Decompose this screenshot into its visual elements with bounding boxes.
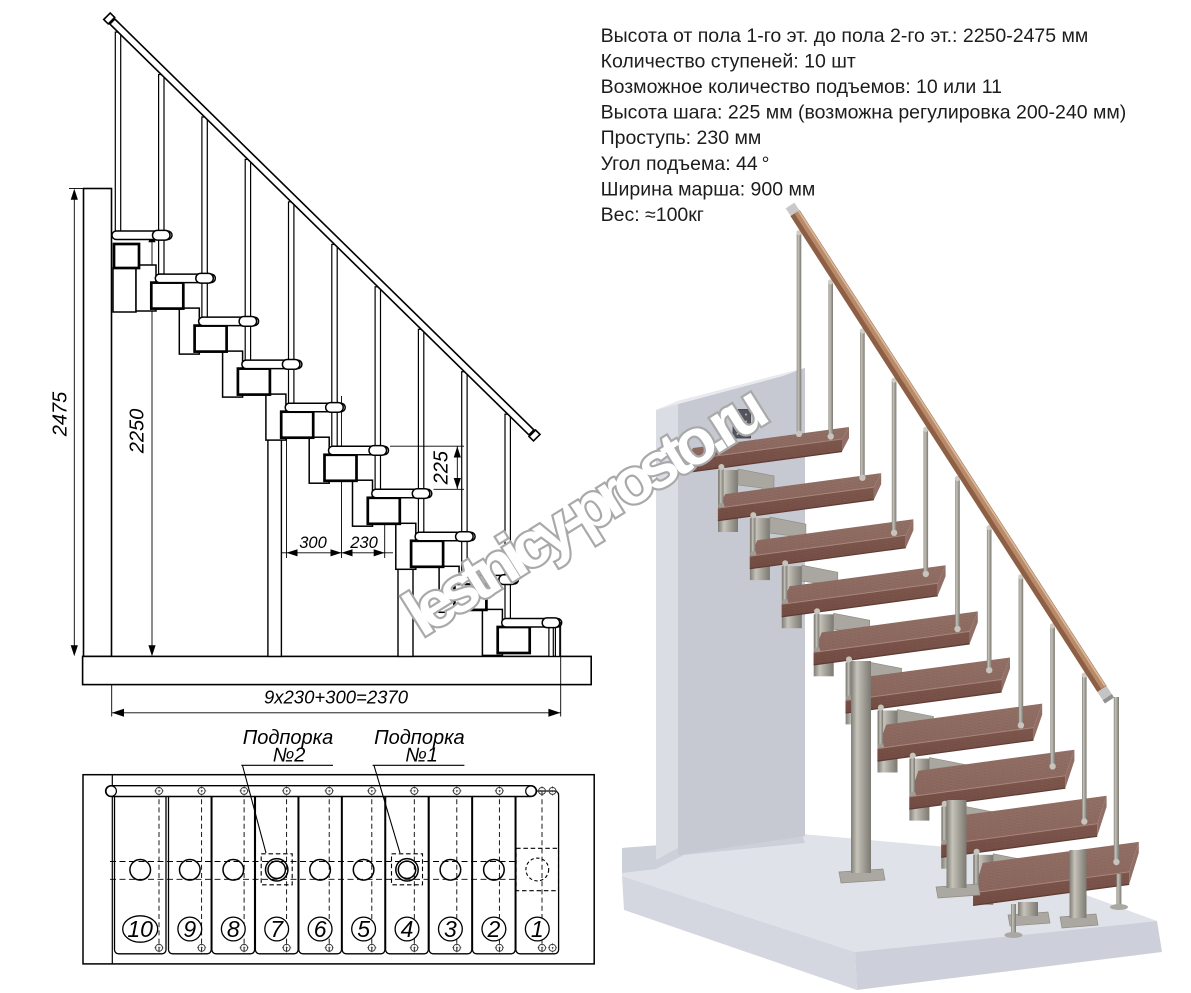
svg-text:9: 9 <box>183 916 196 942</box>
svg-text:4: 4 <box>401 916 414 942</box>
svg-text:230: 230 <box>349 534 378 552</box>
svg-text:Возможное количество подъемов:: Возможное количество подъемов: 10 или 11 <box>601 76 1002 98</box>
svg-text:3: 3 <box>444 916 457 942</box>
svg-text:2250: 2250 <box>127 409 149 455</box>
svg-text:Проступь: 230 мм: Проступь: 230 мм <box>601 127 762 149</box>
svg-text:Высота шага: 225 мм (возможна: Высота шага: 225 мм (возможна регулировк… <box>601 102 1127 124</box>
svg-text:2475: 2475 <box>50 391 72 437</box>
svg-text:9x230+300=2370: 9x230+300=2370 <box>264 687 409 708</box>
svg-text:1: 1 <box>531 916 544 942</box>
svg-text:6: 6 <box>314 916 327 942</box>
svg-text:Вес: ≈100кг: Вес: ≈100кг <box>601 204 704 226</box>
svg-text:№2: №2 <box>273 745 306 767</box>
svg-text:10: 10 <box>127 916 153 942</box>
svg-text:Высота от пола 1-го эт. до пол: Высота от пола 1-го эт. до пола 2-го эт.… <box>601 25 1089 47</box>
svg-text:5: 5 <box>357 916 370 942</box>
svg-text:Количество ступеней: 10 шт: Количество ступеней: 10 шт <box>601 50 856 72</box>
svg-text:Ширина марша: 900 мм: Ширина марша: 900 мм <box>601 178 816 200</box>
svg-text:Угол подъема: 44 °: Угол подъема: 44 ° <box>601 153 770 175</box>
svg-text:8: 8 <box>227 916 240 942</box>
svg-text:7: 7 <box>270 916 284 942</box>
svg-text:2: 2 <box>487 916 501 942</box>
svg-text:225: 225 <box>431 450 453 485</box>
svg-text:300: 300 <box>299 534 327 552</box>
svg-text:№1: №1 <box>405 745 438 767</box>
